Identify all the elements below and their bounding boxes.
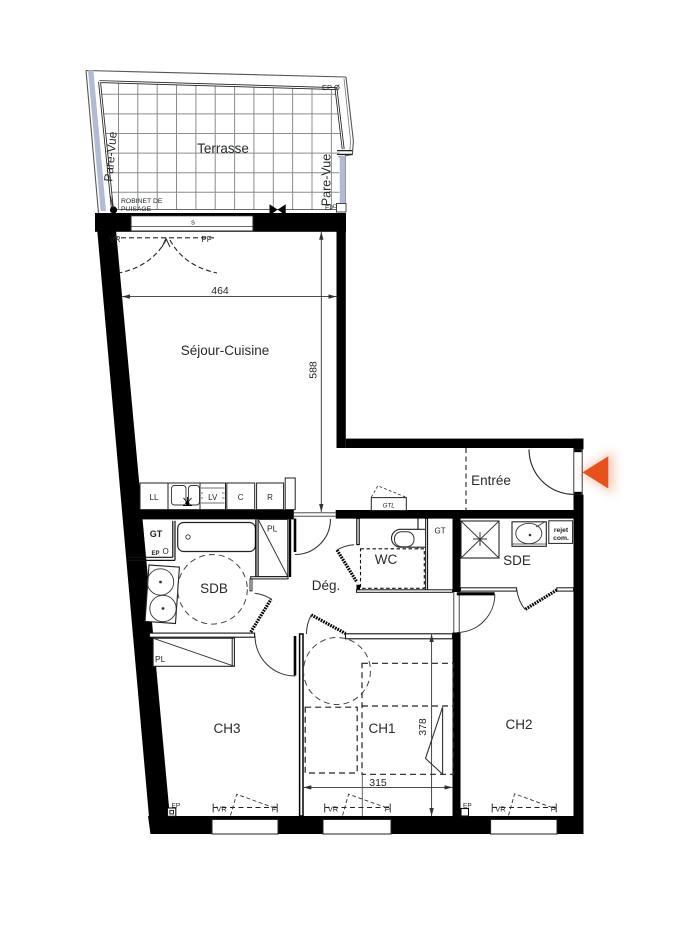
- svg-text:s: s: [191, 218, 195, 227]
- svg-text:C: C: [238, 493, 244, 502]
- svg-text:ROBINET DE: ROBINET DE: [121, 198, 163, 205]
- svg-text:Séjour-Cuisine: Séjour-Cuisine: [181, 343, 270, 358]
- svg-text:EP: EP: [172, 803, 181, 810]
- svg-text:CH2: CH2: [505, 717, 532, 732]
- svg-text:PL: PL: [155, 654, 166, 664]
- svg-text:Entrée: Entrée: [471, 473, 511, 488]
- svg-text:EP: EP: [151, 551, 159, 557]
- svg-text:CH1: CH1: [368, 721, 395, 736]
- svg-text:com.: com.: [553, 535, 569, 542]
- svg-text:SDB: SDB: [200, 581, 228, 596]
- svg-text:VR: VR: [109, 235, 120, 244]
- svg-text:GT: GT: [150, 529, 163, 539]
- svg-text:VR: VR: [495, 805, 506, 814]
- svg-text:LV: LV: [208, 493, 218, 502]
- svg-text:588: 588: [308, 361, 320, 379]
- svg-text:EP: EP: [463, 803, 472, 810]
- svg-text:PL: PL: [267, 524, 278, 534]
- svg-text:F: F: [272, 805, 277, 814]
- svg-text:R: R: [267, 493, 273, 502]
- svg-text:EP Ø: EP Ø: [322, 83, 340, 92]
- svg-text:378: 378: [417, 718, 429, 736]
- svg-text:Dég.: Dég.: [312, 578, 341, 593]
- svg-text:SDE: SDE: [503, 553, 531, 568]
- svg-text:VR: VR: [216, 805, 227, 814]
- svg-text:rejet: rejet: [554, 527, 569, 534]
- svg-text:LL: LL: [150, 493, 159, 502]
- svg-text:GT: GT: [435, 527, 446, 536]
- svg-text:WC: WC: [375, 552, 398, 567]
- svg-text:GTL: GTL: [383, 503, 396, 510]
- svg-text:Terrasse: Terrasse: [197, 141, 249, 156]
- svg-text:464: 464: [211, 285, 229, 297]
- svg-text:CH3: CH3: [213, 721, 240, 736]
- svg-text:315: 315: [369, 777, 387, 789]
- svg-text:VR: VR: [328, 805, 339, 814]
- svg-text:PUISAGE: PUISAGE: [121, 206, 152, 213]
- svg-text:PF: PF: [201, 235, 211, 244]
- svg-text:O: O: [163, 547, 169, 556]
- svg-text:Pare-Vue: Pare-Vue: [320, 154, 334, 206]
